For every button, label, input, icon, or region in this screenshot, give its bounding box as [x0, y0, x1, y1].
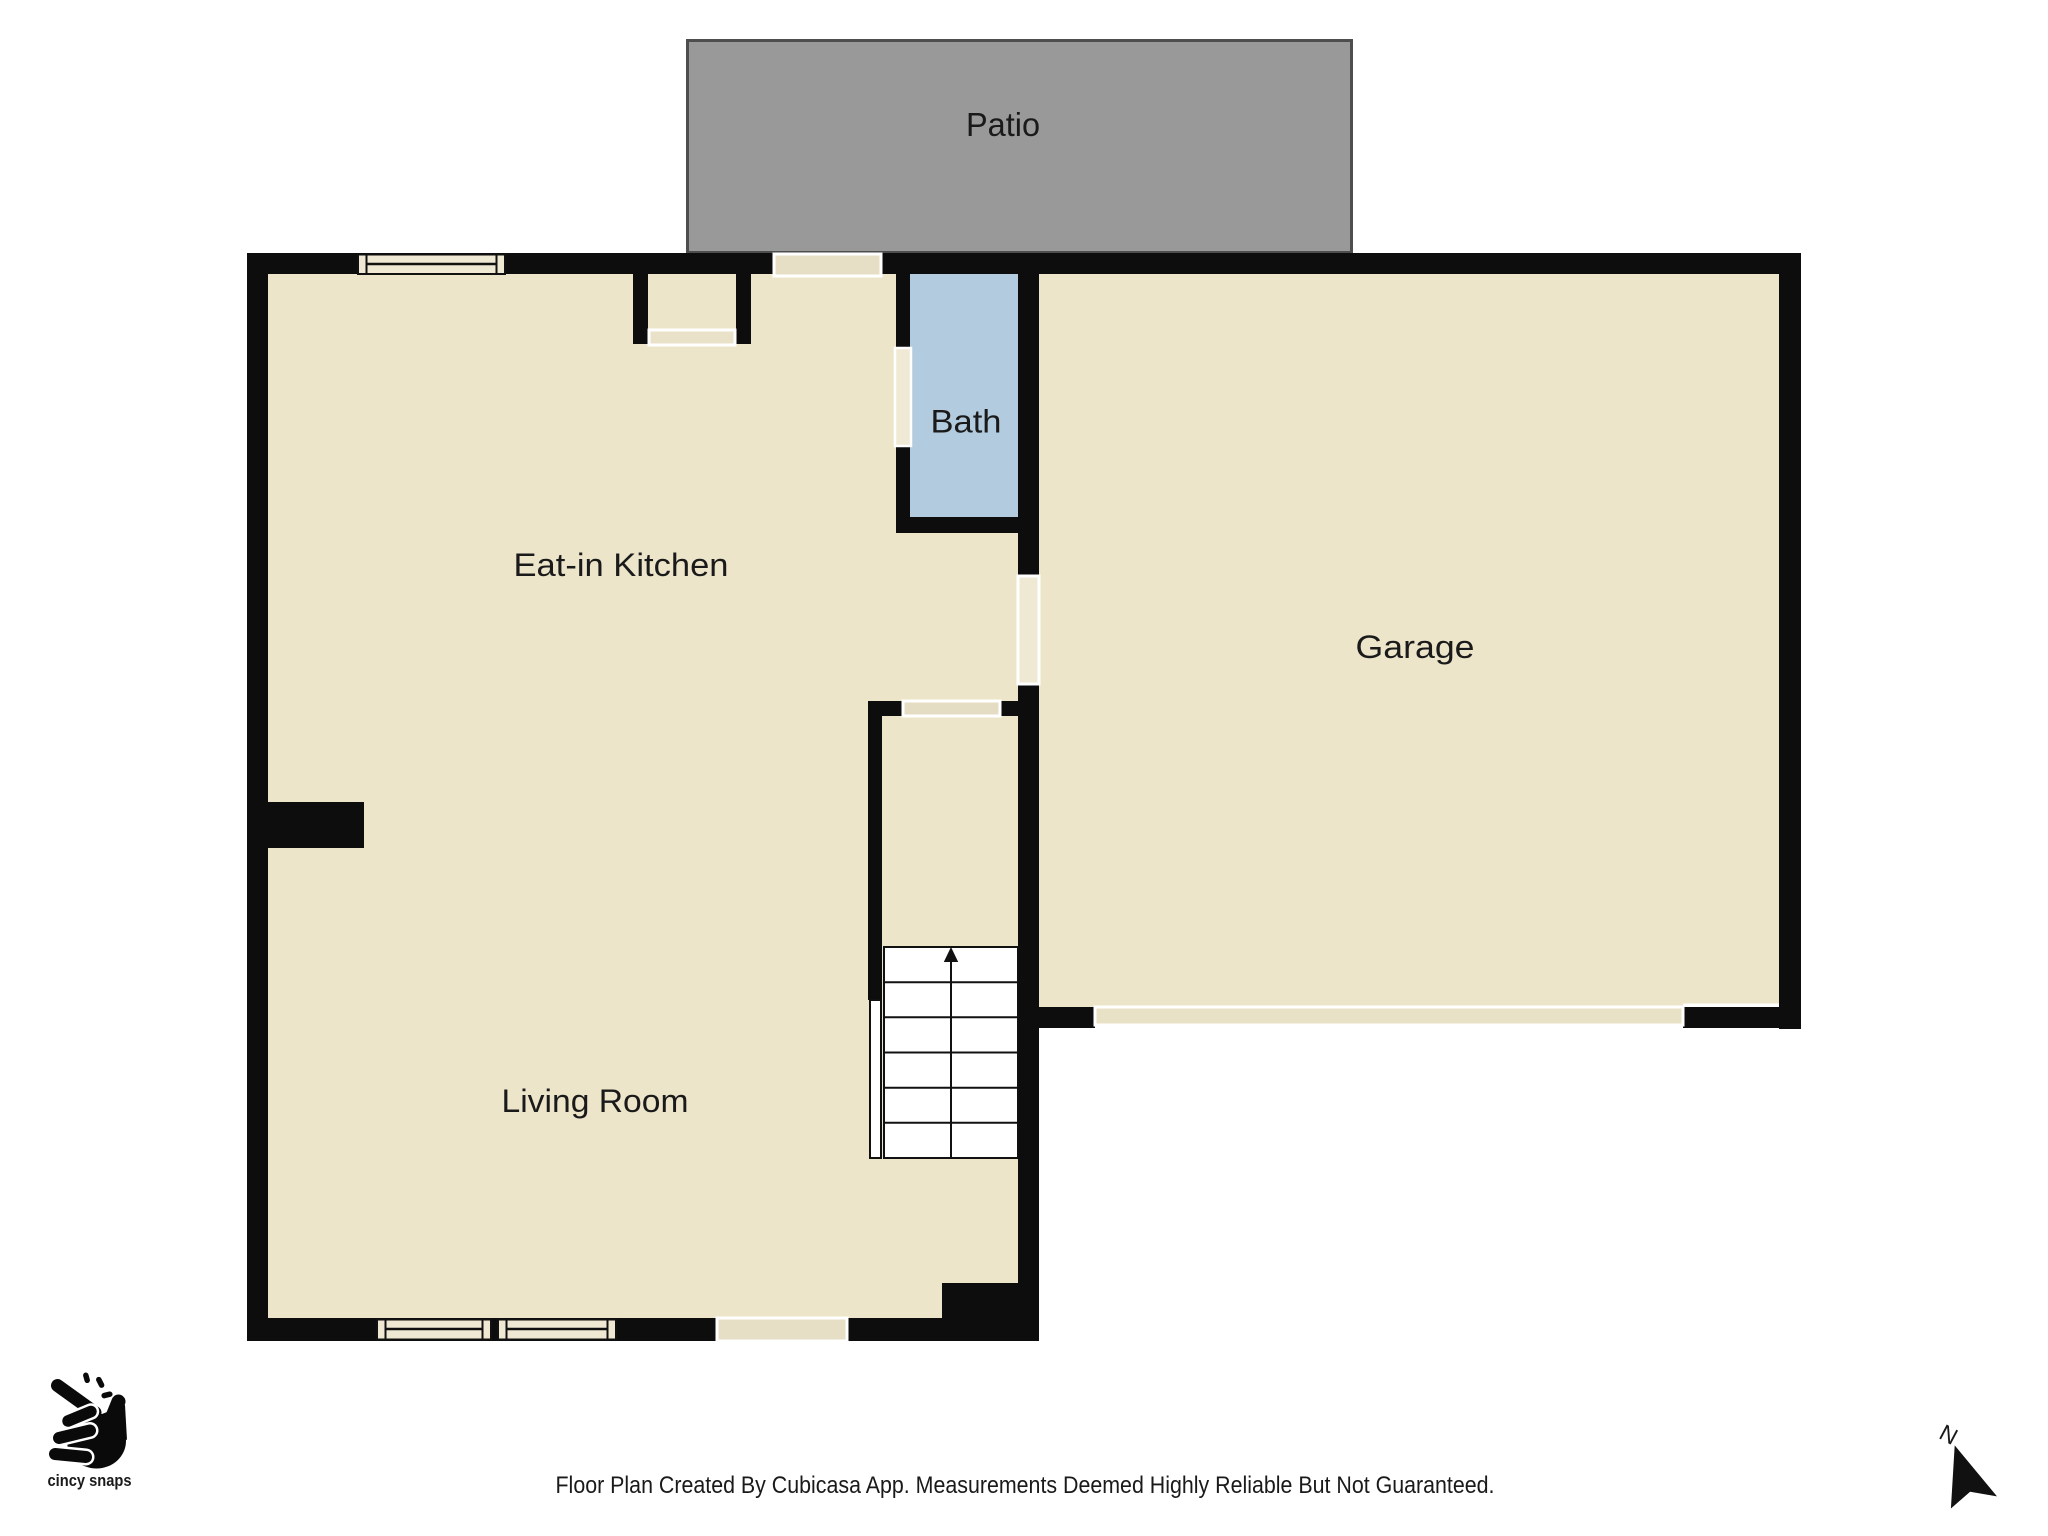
svg-text:Eat-in Kitchen: Eat-in Kitchen	[514, 547, 729, 583]
svg-text:Garage: Garage	[1356, 629, 1475, 665]
svg-text:Bath: Bath	[931, 404, 1002, 440]
svg-text:Patio: Patio	[966, 106, 1040, 143]
svg-text:Floor Plan Created By Cubicasa: Floor Plan Created By Cubicasa App. Meas…	[556, 1472, 1495, 1499]
svg-text:cincy snaps: cincy snaps	[48, 1472, 132, 1490]
svg-text:Living Room: Living Room	[502, 1083, 689, 1119]
